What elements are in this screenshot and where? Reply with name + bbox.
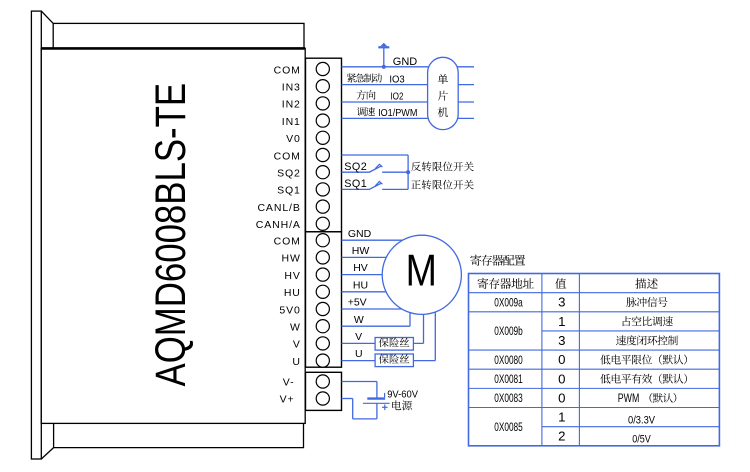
svg-text:0/5V: 0/5V [632, 433, 651, 445]
svg-text:0X009a: 0X009a [494, 295, 523, 309]
svg-text:SQ2: SQ2 [277, 168, 301, 180]
svg-text:SQ1: SQ1 [277, 185, 301, 197]
svg-text:IO2: IO2 [390, 91, 403, 102]
svg-text:COM: COM [274, 150, 301, 162]
svg-text:IN2: IN2 [282, 99, 301, 111]
svg-text:1: 1 [558, 314, 565, 329]
svg-text:IN3: IN3 [282, 82, 301, 94]
svg-text:HV: HV [353, 262, 368, 274]
svg-text:IN1: IN1 [282, 116, 301, 128]
svg-text:0: 0 [558, 352, 565, 367]
svg-text:5V0: 5V0 [279, 304, 300, 316]
svg-text:HU: HU [284, 287, 301, 299]
svg-text:HW: HW [282, 253, 301, 265]
svg-text:CANH/A: CANH/A [256, 219, 301, 231]
svg-text:0X009b: 0X009b [494, 324, 523, 338]
svg-text:CANL/B: CANL/B [257, 202, 300, 214]
svg-text:GND: GND [348, 228, 372, 240]
svg-text:0X0081: 0X0081 [494, 372, 523, 386]
svg-text:V+: V+ [280, 394, 295, 406]
svg-text:0/3.3V: 0/3.3V [628, 414, 655, 426]
svg-text:0X0080: 0X0080 [494, 353, 523, 367]
svg-text:U: U [355, 348, 363, 360]
svg-text:+5V: +5V [348, 297, 367, 309]
svg-text:1: 1 [558, 410, 565, 425]
svg-text:HW: HW [352, 245, 370, 257]
svg-text:3: 3 [558, 333, 565, 348]
svg-text:U: U [292, 356, 300, 368]
svg-text:IO1/PWM: IO1/PWM [378, 108, 417, 119]
svg-text:HV: HV [284, 270, 300, 282]
svg-text:V-: V- [283, 377, 295, 389]
svg-text:IO3: IO3 [389, 74, 405, 85]
svg-text:0X0085: 0X0085 [494, 420, 523, 434]
svg-text:0X0083: 0X0083 [494, 391, 523, 405]
svg-text:0: 0 [558, 371, 565, 386]
svg-text:HU: HU [353, 279, 368, 291]
svg-text:SQ2: SQ2 [344, 161, 367, 173]
svg-text:W: W [290, 322, 301, 334]
svg-text:2: 2 [558, 429, 565, 444]
svg-text:V: V [355, 331, 362, 343]
svg-text:V: V [293, 339, 301, 351]
svg-text:AQMD6008BLS-TE: AQMD6008BLS-TE [147, 83, 195, 387]
svg-text:3: 3 [558, 295, 565, 310]
svg-text:COM: COM [274, 64, 301, 76]
svg-text:GND: GND [393, 56, 418, 68]
svg-text:V0: V0 [286, 133, 301, 145]
svg-text:W: W [354, 314, 364, 326]
svg-text:PWM: PWM [618, 392, 640, 405]
svg-text:0: 0 [558, 390, 565, 405]
svg-text:9V-60V: 9V-60V [387, 389, 418, 400]
svg-text:M: M [406, 247, 437, 296]
svg-text:SQ1: SQ1 [344, 178, 367, 190]
svg-text:COM: COM [274, 236, 301, 248]
